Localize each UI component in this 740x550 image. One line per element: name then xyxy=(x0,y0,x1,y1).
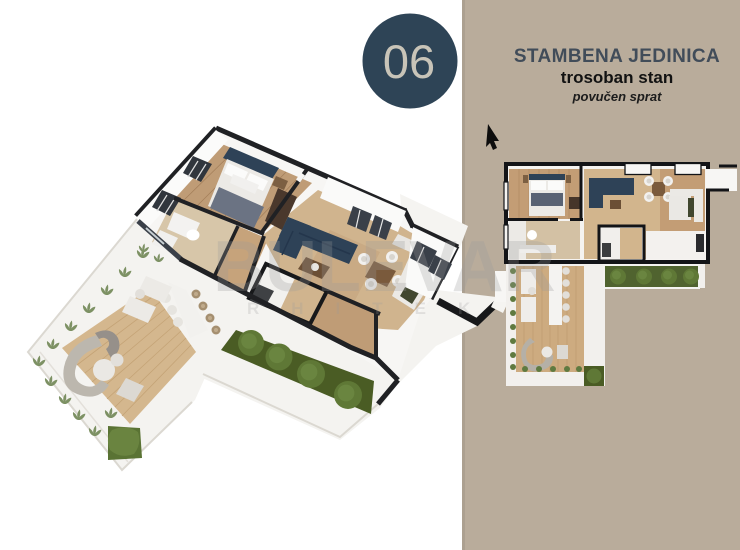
svg-text:06: 06 xyxy=(383,35,435,88)
